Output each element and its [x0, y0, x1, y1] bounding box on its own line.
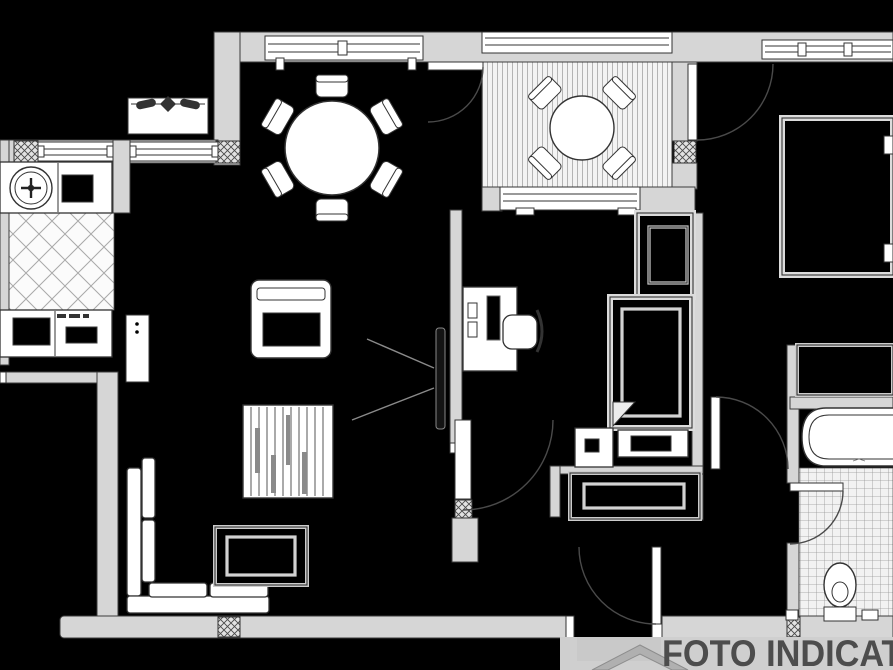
floor-plan-page: FOTO INDICATI [0, 0, 893, 670]
wall-segment [550, 466, 560, 517]
dining-table [285, 101, 379, 195]
terrace-table [550, 96, 614, 160]
watermark: FOTO INDICATI [560, 633, 893, 670]
wall-segment [450, 210, 462, 445]
built-in-closet [782, 118, 893, 275]
wall-segment [640, 187, 695, 211]
bed-bench [618, 430, 688, 457]
wall-segment [60, 616, 573, 638]
monitor-icon [487, 296, 500, 340]
slatted-cabinet [243, 405, 333, 498]
wall-segment [790, 397, 893, 409]
armchair [251, 280, 331, 358]
wall-segment [97, 372, 118, 622]
hatch-pier [218, 617, 240, 637]
cabinet [797, 345, 893, 395]
kitchen-appliance [62, 175, 93, 202]
balcony-planter [128, 96, 208, 134]
floor-plan-drawing: FOTO INDICATI [0, 0, 893, 670]
kitchen-door-leaf [126, 315, 149, 382]
terrace-railing [482, 32, 672, 53]
hatch-pier [674, 141, 696, 163]
kitchen-floor-tiles [2, 213, 114, 310]
second-bedroom [782, 118, 893, 395]
kitchen-window-right [130, 142, 218, 161]
wall-segment [482, 187, 502, 211]
wall-segment [452, 518, 478, 562]
wall-segment [0, 372, 103, 383]
wall-segment [672, 163, 697, 189]
top-right-window [762, 40, 893, 59]
coffee-table [215, 527, 307, 585]
hatch-pier [216, 141, 240, 163]
nightstand [575, 428, 613, 467]
sofa-back-cushion [142, 520, 155, 582]
wall-segment [787, 543, 799, 616]
watermark-text: FOTO INDICATI [662, 633, 893, 670]
wall-segment [113, 140, 130, 213]
hatch-pier [14, 141, 38, 162]
bed [610, 297, 692, 428]
sofa-armrest [127, 468, 141, 596]
wardrobe [637, 213, 693, 297]
bathtub [802, 408, 893, 466]
kitchen-window-left [38, 142, 113, 161]
sofa-base [127, 596, 269, 613]
wall-end-cap [566, 616, 574, 638]
cooktop-icon [57, 314, 66, 318]
hatch-pier [455, 500, 472, 518]
wall-end-cap [0, 372, 6, 383]
sofa-seat-cushion [149, 583, 207, 597]
sofa-back-cushion [142, 458, 155, 518]
sideboard [570, 473, 700, 519]
